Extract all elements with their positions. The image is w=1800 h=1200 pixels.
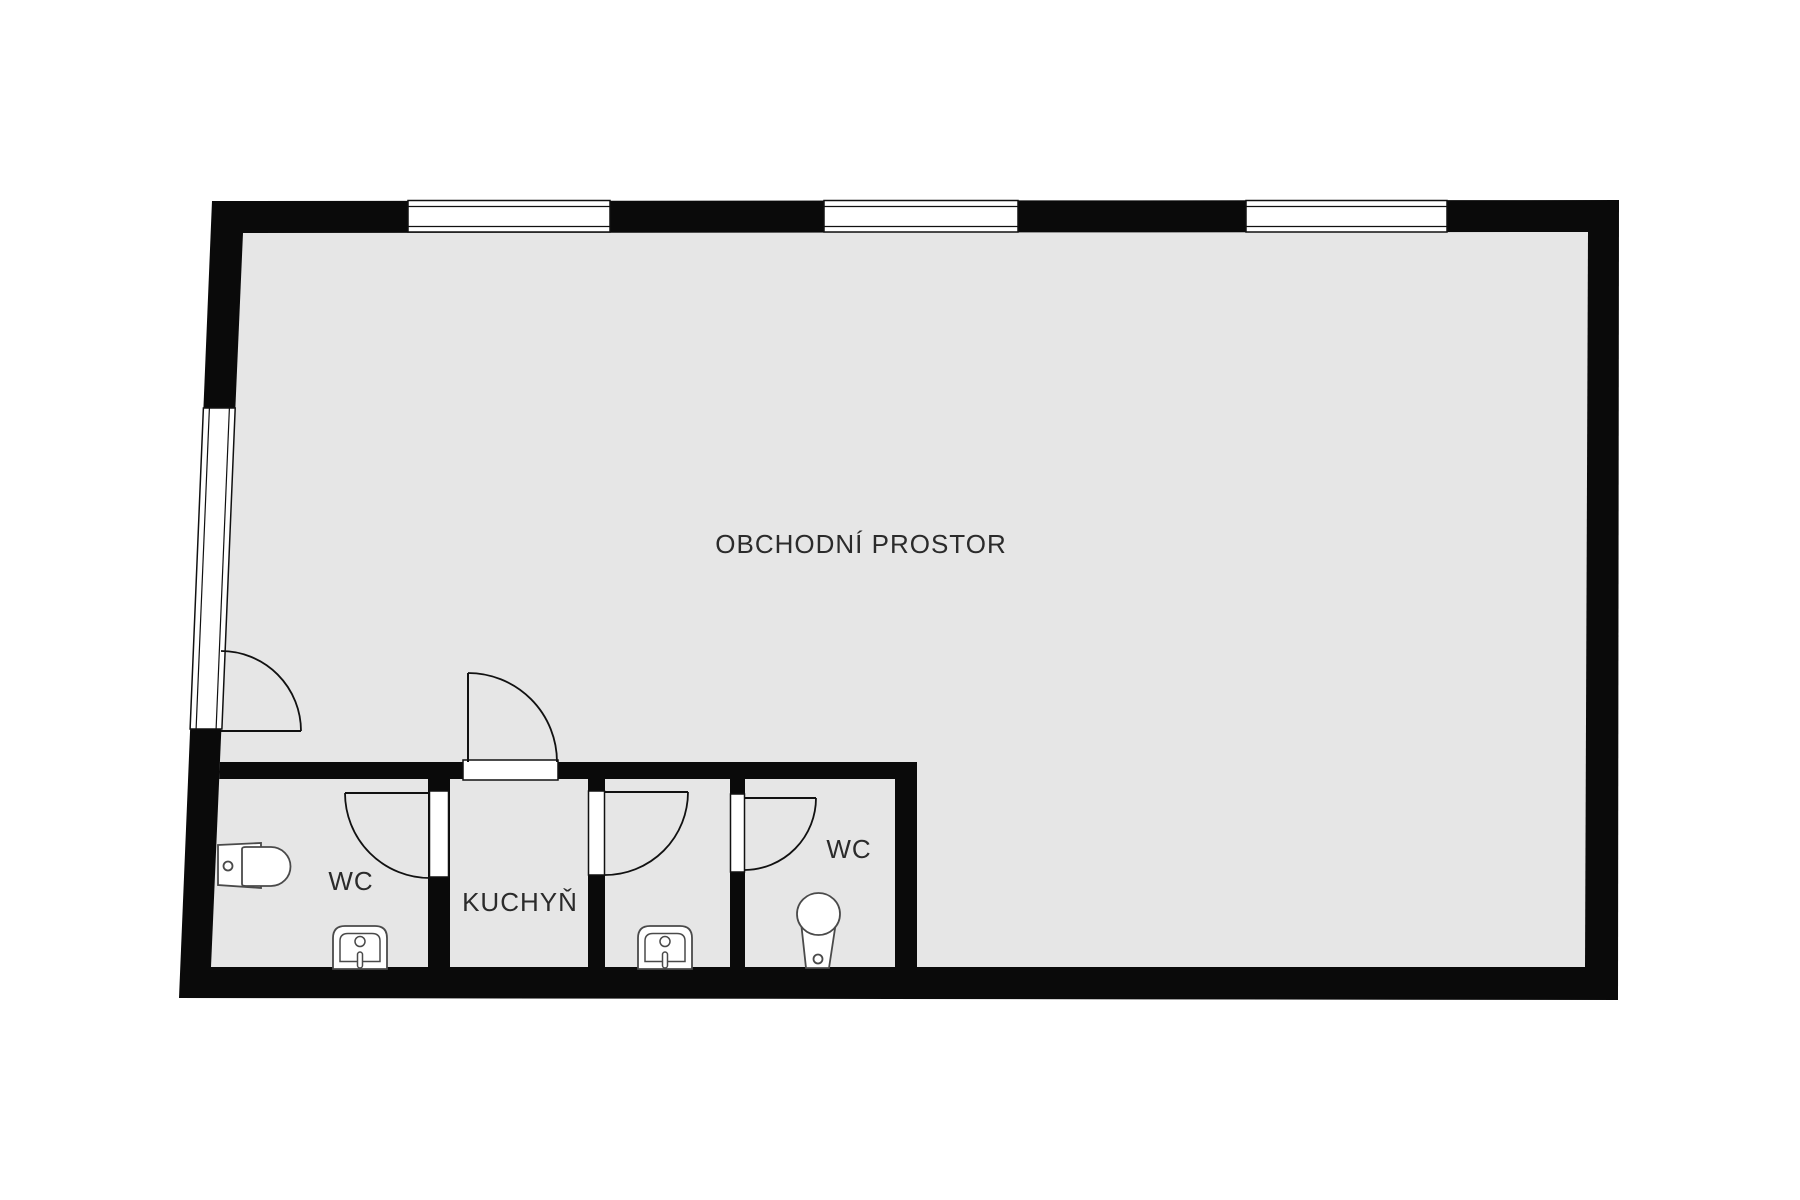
partition-top [219, 762, 917, 779]
window-top-2 [824, 201, 1018, 233]
toilet-wc-left-flush-button [224, 862, 233, 871]
toilet-wc-right-flush-button [814, 955, 823, 964]
block-end-wall [895, 779, 917, 968]
sink-middle-room-drain [663, 952, 668, 968]
middle-room-door-jamb [589, 791, 605, 875]
sink-wc-left-faucet [355, 937, 365, 947]
toilet-wc-left-bowl [242, 847, 291, 886]
wc-left-door-jamb [430, 791, 449, 877]
room-label-wc-right: WC [826, 834, 871, 864]
sink-wc-left-drain [358, 952, 363, 968]
room-label-main: OBCHODNÍ PROSTOR [715, 529, 1006, 559]
window-top-3 [1246, 201, 1447, 233]
floor-plan-layers [179, 200, 1619, 1000]
window-top-1 [408, 201, 610, 233]
sink-middle-room-faucet [660, 937, 670, 947]
wc-right-door-jamb [731, 794, 745, 872]
floor-plan-svg: OBCHODNÍ PROSTOR WC KUCHYŇ WC [0, 0, 1800, 1200]
toilet-wc-right-bowl [797, 893, 840, 935]
floor-plan-page: OBCHODNÍ PROSTOR WC KUCHYŇ WC [0, 0, 1800, 1200]
kitchen-door-jamb [463, 760, 558, 780]
room-label-wc-left: WC [328, 866, 373, 896]
room-label-kitchen: KUCHYŇ [462, 887, 578, 917]
